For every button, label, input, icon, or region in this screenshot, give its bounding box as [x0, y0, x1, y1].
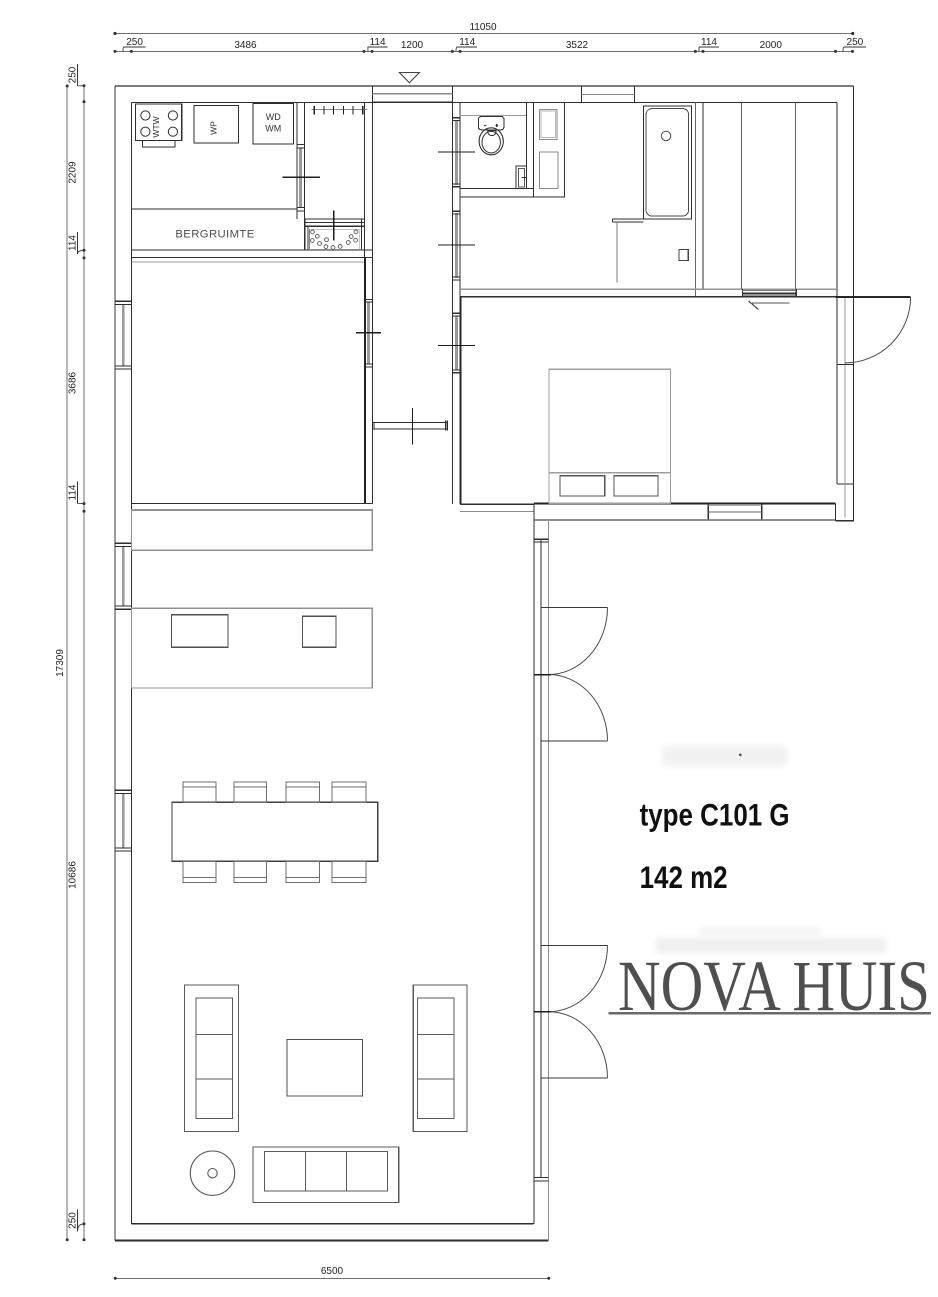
- svg-text:2209: 2209: [68, 161, 79, 184]
- svg-text:6500: 6500: [321, 1266, 344, 1277]
- svg-text:114: 114: [68, 484, 79, 500]
- svg-text:17309: 17309: [55, 649, 66, 677]
- svg-text:type C101 G: type C101 G: [640, 797, 790, 833]
- svg-text:250: 250: [68, 1212, 79, 1229]
- svg-text:WP: WP: [209, 121, 219, 135]
- svg-text:142 m2: 142 m2: [640, 859, 728, 895]
- svg-text:114: 114: [701, 37, 717, 48]
- svg-text:10686: 10686: [68, 861, 79, 889]
- svg-text:WM: WM: [265, 124, 281, 134]
- svg-text:250: 250: [126, 37, 143, 48]
- svg-text:114: 114: [459, 37, 475, 48]
- svg-text:114: 114: [68, 235, 79, 251]
- svg-text:3486: 3486: [234, 40, 257, 51]
- svg-text:BERGRUIMTE: BERGRUIMTE: [175, 228, 254, 240]
- svg-text:250: 250: [847, 37, 864, 48]
- svg-text:250: 250: [68, 66, 79, 83]
- svg-text:2000: 2000: [760, 40, 783, 51]
- svg-text:114: 114: [370, 37, 386, 48]
- svg-text:WD: WD: [266, 112, 281, 122]
- svg-text:1200: 1200: [401, 40, 424, 51]
- svg-text:3522: 3522: [566, 40, 589, 51]
- svg-text:WTW: WTW: [151, 116, 161, 137]
- svg-text:11050: 11050: [469, 22, 497, 33]
- svg-text:3686: 3686: [68, 371, 79, 394]
